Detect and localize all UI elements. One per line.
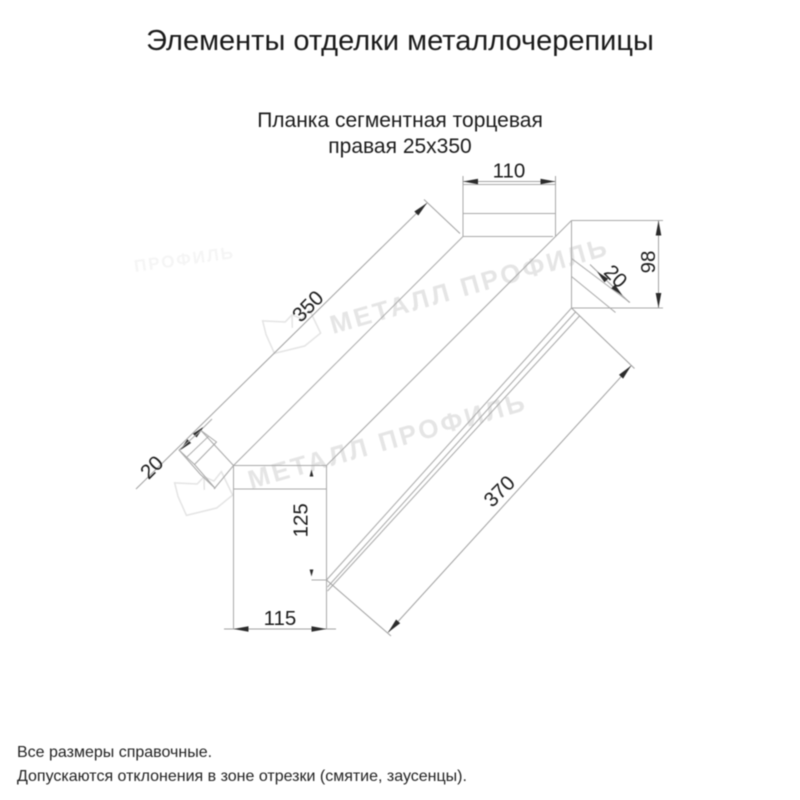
svg-text:20: 20 xyxy=(599,260,631,292)
svg-text:350: 350 xyxy=(288,286,328,326)
svg-text:115: 115 xyxy=(264,607,297,630)
svg-text:МЕТАЛЛ ПРОФИЛЬ: МЕТАЛЛ ПРОФИЛЬ xyxy=(244,386,530,494)
svg-text:20: 20 xyxy=(136,451,168,483)
svg-text:125: 125 xyxy=(289,503,312,537)
svg-text:МЕТАЛЛ ПРОФИЛЬ: МЕТАЛЛ ПРОФИЛЬ xyxy=(326,231,612,339)
svg-text:98: 98 xyxy=(637,251,660,274)
svg-text:110: 110 xyxy=(493,160,526,183)
svg-text:370: 370 xyxy=(479,471,519,511)
svg-text:ПРОФИЛЬ: ПРОФИЛЬ xyxy=(133,243,236,276)
